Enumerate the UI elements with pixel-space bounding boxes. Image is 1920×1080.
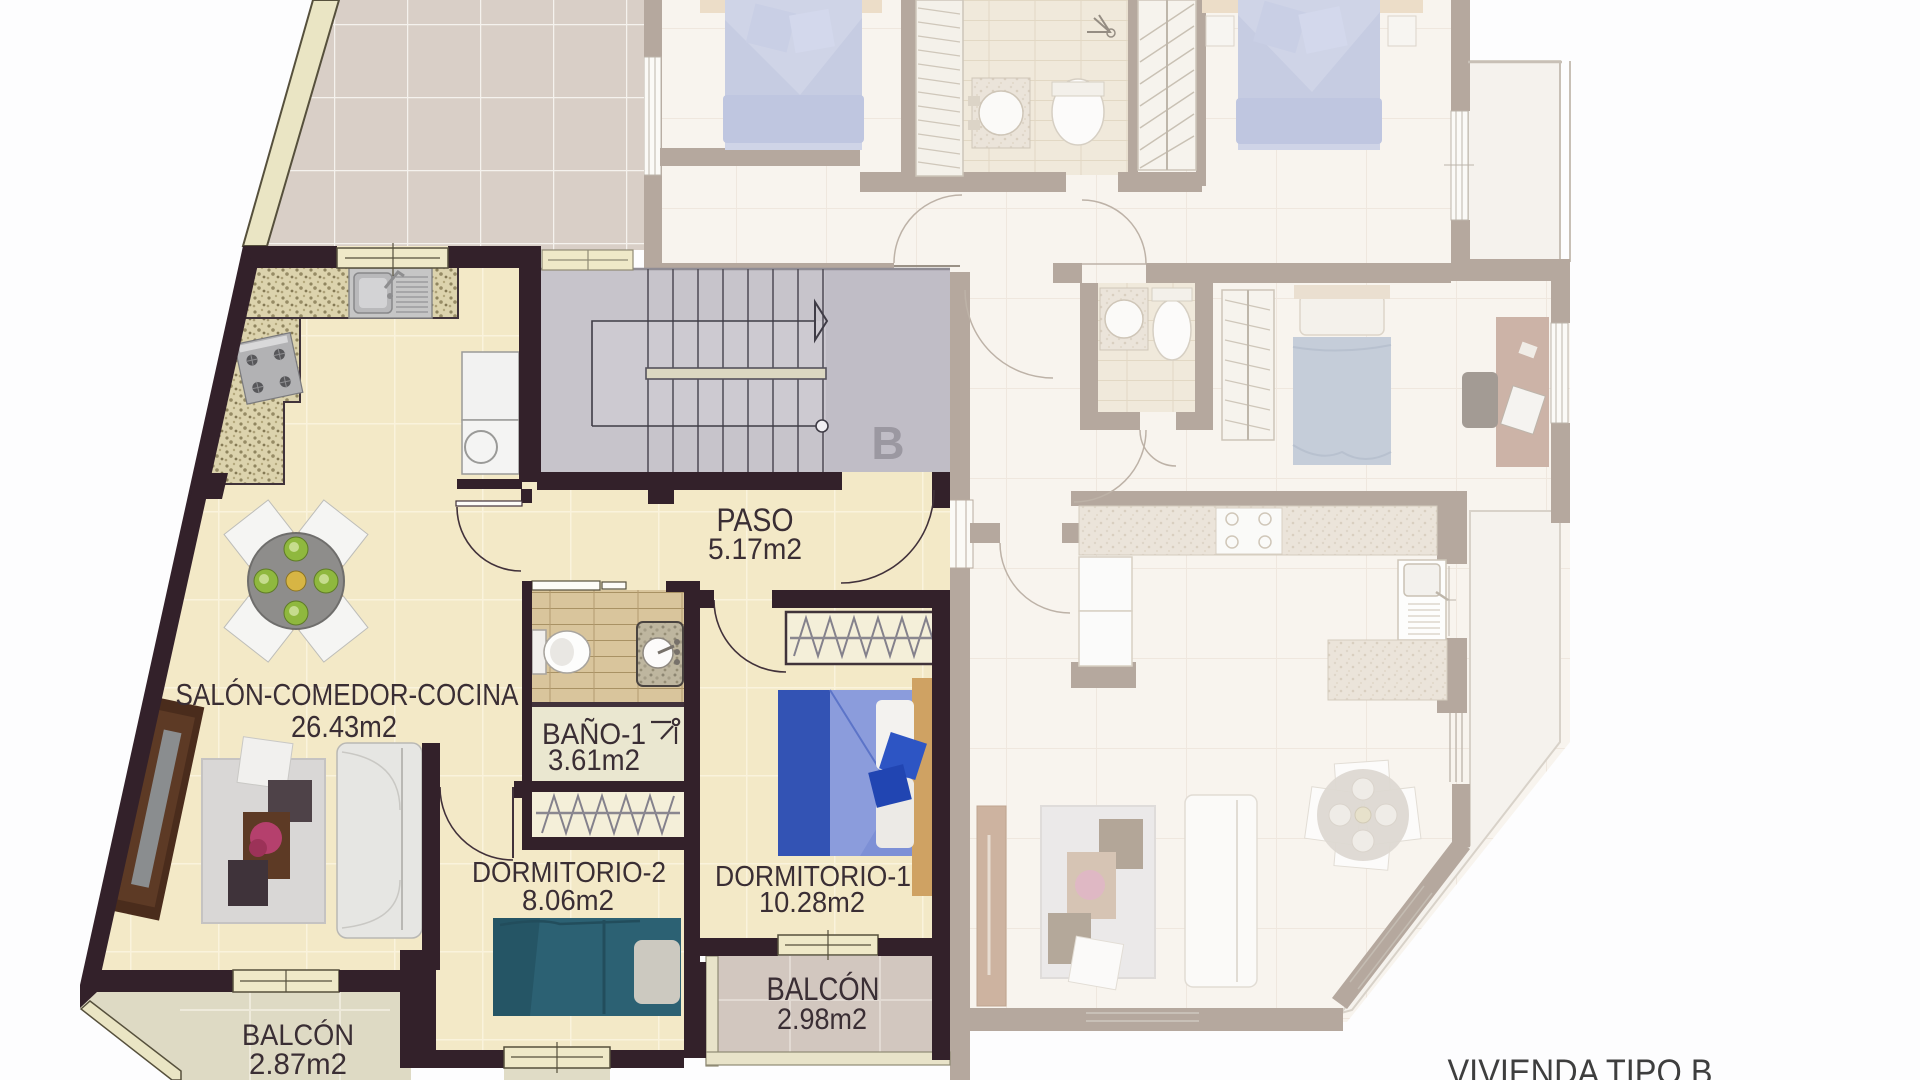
svg-text:BALCÓN: BALCÓN — [767, 971, 880, 1007]
svg-text:B: B — [871, 417, 904, 469]
svg-text:VIVIENDA TIPO B: VIVIENDA TIPO B — [1448, 1053, 1713, 1080]
svg-text:2.98m2: 2.98m2 — [777, 1003, 867, 1036]
svg-text:3.61m2: 3.61m2 — [548, 744, 640, 777]
svg-text:8.06m2: 8.06m2 — [522, 885, 614, 917]
svg-text:2.87m2: 2.87m2 — [249, 1048, 347, 1080]
svg-text:26.43m2: 26.43m2 — [291, 709, 397, 744]
svg-text:10.28m2: 10.28m2 — [759, 887, 865, 919]
svg-text:SALÓN-COMEDOR-COCINA: SALÓN-COMEDOR-COCINA — [176, 677, 519, 712]
svg-text:5.17m2: 5.17m2 — [708, 533, 802, 566]
